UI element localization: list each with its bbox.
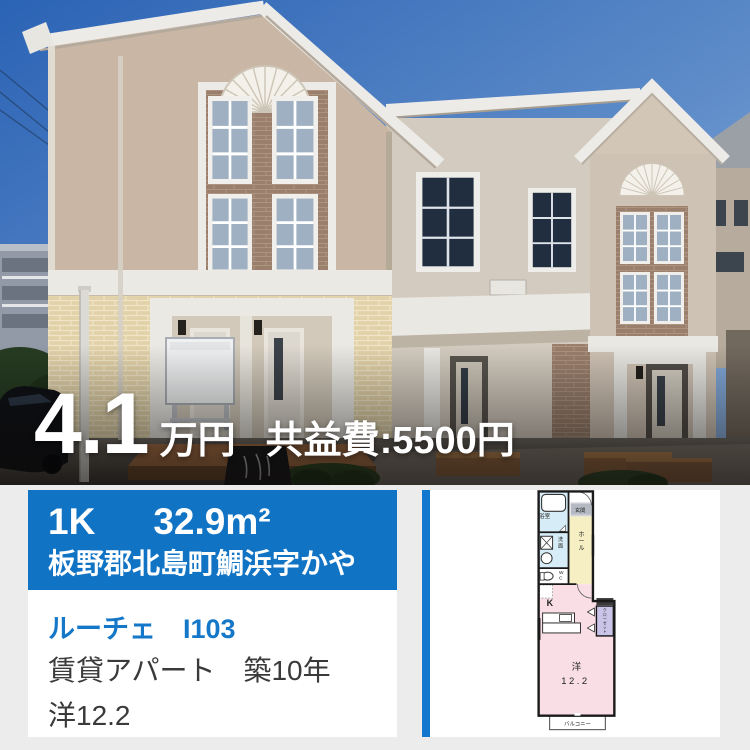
hall-label: ホール	[578, 531, 584, 552]
closet-label: クローゼット	[603, 608, 607, 634]
accent-bar	[422, 490, 430, 737]
washroom-label: 洗面	[558, 535, 564, 549]
window-2f	[208, 96, 252, 184]
info-card-body: ルーチェ I103 賃貸アパート 築10年 洋12.2	[28, 590, 397, 734]
porch-lamp-left-2	[254, 320, 262, 335]
floorplan-image[interactable]: 浴室 玄関 ホール 洗面 WC K クローゼット 洋 12.2 バルコニー	[430, 490, 720, 737]
floorplan-drawing: 浴室 玄関 ホール 洗面 WC K クローゼット 洋 12.2 バルコニー	[430, 490, 720, 737]
layout-type: 1K	[48, 500, 95, 544]
ac-unit	[490, 280, 526, 295]
fridge-space	[540, 585, 553, 598]
kitchen-label: K	[547, 598, 554, 608]
room-info: 洋12.2	[48, 697, 377, 734]
room-size-label: 12.2	[561, 676, 589, 687]
price-overlay: 4.1 万円 共益費:5500円	[34, 381, 515, 467]
wash-basin	[541, 553, 552, 564]
bath-label: 浴室	[539, 512, 551, 520]
maintenance-fee: 共益費:5500円	[266, 409, 515, 464]
porch-lamp-left-1	[178, 320, 186, 335]
floor-area: 32.9m²	[153, 500, 270, 544]
price-unit: 万円	[160, 409, 236, 464]
floorplan-card[interactable]: 浴室 玄関 ホール 洗面 WC K クローゼット 洋 12.2 バルコニー	[422, 490, 720, 737]
address: 板野郡北島町鯛浜字かや	[48, 546, 377, 582]
window-2f	[272, 194, 318, 274]
window-dark-large	[416, 172, 480, 272]
info-card[interactable]: 1K 32.9m² 板野郡北島町鯛浜字かや ルーチェ I103 賃貸アパート 築…	[28, 490, 397, 737]
listing-page: 4.1 万円 共益費:5500円 1K 32.9m² 板野郡北島町鯛浜字かや ル…	[0, 0, 750, 750]
property-name-link[interactable]: ルーチェ I103	[48, 614, 377, 644]
window-2f	[208, 194, 252, 274]
balcony-label: バルコニー	[564, 721, 591, 728]
window-2f	[272, 96, 318, 184]
window-dark-small	[528, 188, 576, 272]
room-label: 洋	[572, 661, 582, 673]
listing-details-section: 1K 32.9m² 板野郡北島町鯛浜字かや ルーチェ I103 賃貸アパート 築…	[0, 485, 750, 750]
bathtub	[542, 494, 566, 511]
price-value: 4.1	[34, 381, 148, 467]
info-card-header: 1K 32.9m² 板野郡北島町鯛浜字かや	[28, 490, 397, 590]
property-photo[interactable]: 4.1 万円 共益費:5500円	[0, 0, 750, 485]
entrance-label: 玄関	[575, 506, 585, 514]
building-info: 賃貸アパート 築10年	[48, 652, 377, 689]
